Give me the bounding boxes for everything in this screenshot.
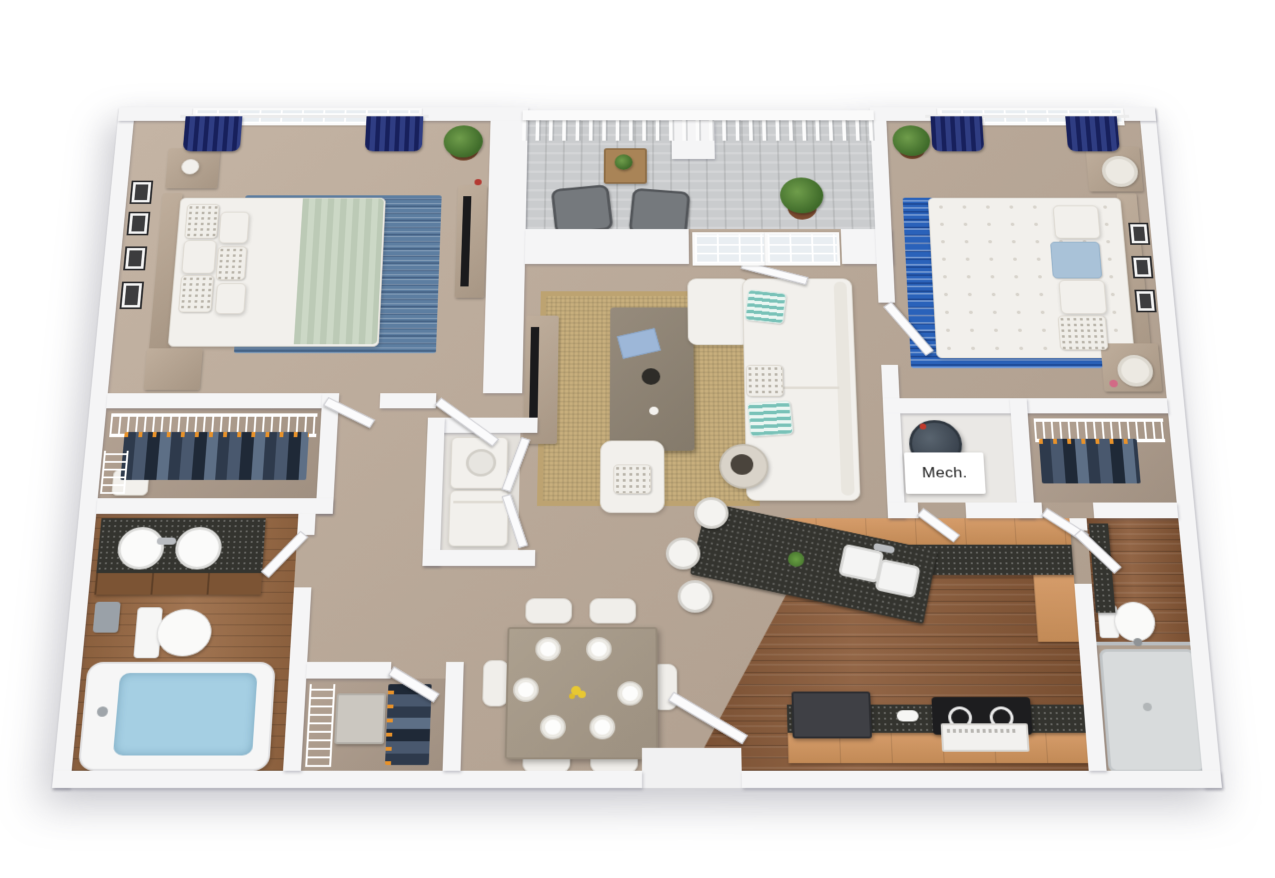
bed2-pillow xyxy=(1058,316,1109,350)
shower-door-handle xyxy=(1133,638,1142,646)
wall-vent xyxy=(100,451,129,494)
flower-centerpiece xyxy=(571,686,581,695)
interior-wall xyxy=(965,503,1042,519)
potted-plant xyxy=(892,125,931,156)
exterior-wall xyxy=(52,771,642,788)
wall-art xyxy=(1131,256,1153,278)
bed1-pillow xyxy=(218,212,249,244)
oven-vent xyxy=(947,729,1019,733)
towel-basket xyxy=(93,602,121,633)
storage-chest xyxy=(334,693,386,744)
mech-room-label-text: Mech. xyxy=(922,464,968,481)
washer xyxy=(448,490,509,546)
floor-plan-screenshot: Mech. xyxy=(0,0,1275,878)
french-door xyxy=(692,232,767,265)
bed2-pillow xyxy=(1053,206,1101,239)
potted-palm xyxy=(780,178,824,214)
wall-art xyxy=(119,282,144,309)
wall-art xyxy=(1128,223,1150,245)
bar-stool xyxy=(694,497,729,528)
balcony-railing-pickets xyxy=(522,120,875,141)
shower-drain xyxy=(1143,703,1153,711)
sofa-pillow-teal xyxy=(747,400,793,436)
navy-curtain xyxy=(365,116,424,151)
place-setting xyxy=(586,637,612,661)
hanging-clothes xyxy=(120,432,309,480)
washer-panel xyxy=(453,501,503,504)
interior-wall xyxy=(443,662,464,771)
dining-chair xyxy=(525,598,572,623)
bar-stool xyxy=(678,580,713,612)
patio-chair xyxy=(551,184,613,234)
interior-wall xyxy=(306,662,391,679)
interior-wall xyxy=(422,550,535,566)
interior-wall xyxy=(380,393,437,408)
faucet xyxy=(157,538,177,545)
interior-wall xyxy=(887,503,918,519)
navy-curtain xyxy=(1065,116,1120,151)
interior-wall xyxy=(881,365,899,398)
side-table-top xyxy=(730,454,753,475)
exterior-wall xyxy=(742,771,1222,788)
coffee-table-decor xyxy=(649,407,658,415)
sofa-pillow-teal xyxy=(745,289,787,324)
side-cabinets xyxy=(1033,575,1079,642)
navy-curtain xyxy=(931,116,985,151)
bed1-pillow xyxy=(178,275,214,312)
place-setting xyxy=(617,681,643,705)
interior-wall xyxy=(106,393,324,408)
balcony-railing xyxy=(523,110,874,120)
navy-curtain xyxy=(183,116,243,151)
dining-chair xyxy=(482,660,509,706)
interior-wall xyxy=(1093,503,1178,519)
refrigerator xyxy=(791,692,872,739)
bed2-pillow xyxy=(1058,280,1107,314)
sofa-chaise xyxy=(687,278,751,345)
wall-art xyxy=(1134,290,1156,313)
nightstand xyxy=(144,348,203,390)
sofa-pillow xyxy=(746,365,784,397)
vanity-cabinet xyxy=(94,573,262,595)
bed1-pillow xyxy=(181,240,216,273)
hanging-clothes xyxy=(1039,439,1141,484)
pink-flowers xyxy=(1109,380,1118,388)
floor-plan: Mech. xyxy=(52,107,1222,788)
bed1-throw-blanket xyxy=(294,198,384,344)
oven-door xyxy=(941,723,1030,751)
wall-art xyxy=(126,212,150,236)
dining-chair xyxy=(589,598,636,623)
bed1-pillow xyxy=(184,204,219,239)
entry-threshold xyxy=(642,748,742,788)
mech-room-label: Mech. xyxy=(904,452,986,493)
paper-towel xyxy=(897,710,919,721)
heater-valve xyxy=(919,424,926,430)
wall-art xyxy=(129,181,153,204)
bed2-pillow-blue xyxy=(1050,242,1102,279)
bathtub-water xyxy=(113,673,258,755)
balcony-wall xyxy=(525,229,689,264)
bed1-pillow xyxy=(216,246,248,280)
coffee-table-bowl xyxy=(642,368,661,385)
interior-wall xyxy=(96,498,333,514)
table-plant xyxy=(615,154,633,169)
french-door xyxy=(765,232,841,265)
wall-art xyxy=(123,246,147,270)
closet-wire-shelf xyxy=(305,684,335,767)
kitchen-sink xyxy=(874,558,920,598)
shower-pan xyxy=(1099,649,1207,773)
interior-wall xyxy=(483,121,528,393)
bar-stool xyxy=(666,538,701,570)
counter-plant xyxy=(788,552,805,567)
place-setting xyxy=(589,715,615,739)
bed1-pillow xyxy=(215,283,247,314)
armchair-pillow xyxy=(613,464,651,493)
shower-glass xyxy=(1096,642,1190,646)
